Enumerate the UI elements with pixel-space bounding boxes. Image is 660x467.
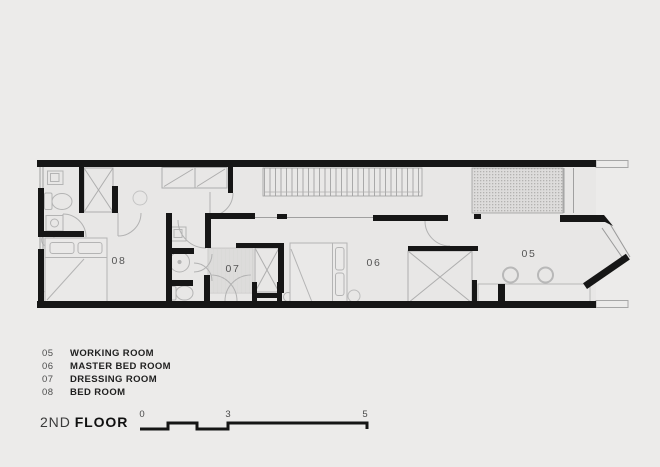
wall-segment [79, 167, 84, 213]
page: 05 06 07 08 0 3 5 05 WORKING ROOM 06 MAS… [0, 0, 660, 467]
bed-06 [290, 243, 347, 303]
room-label-08: 08 [112, 255, 127, 267]
wall-segment [37, 160, 596, 167]
wall-segment [166, 213, 172, 308]
room-label-06: 06 [367, 257, 382, 269]
wall-segment [228, 167, 233, 193]
wall-segment [37, 301, 596, 308]
wall-segment [373, 215, 448, 221]
wall-segment [168, 248, 194, 254]
wall-segment [472, 280, 477, 303]
wall-segment [38, 249, 44, 306]
wall-segment [474, 214, 481, 219]
legend-row: 08 BED ROOM [42, 386, 171, 399]
legend-name: BED ROOM [70, 387, 125, 398]
legend-code: 06 [42, 361, 70, 372]
bed-08 [45, 238, 107, 302]
wall-segment [205, 213, 211, 248]
wall-segment [498, 284, 505, 304]
room-label-07: 07 [226, 263, 241, 275]
wall-segment [277, 282, 282, 303]
wall-segment [168, 280, 193, 286]
wall-segment [408, 246, 478, 251]
scale-tick-3: 3 [225, 409, 230, 420]
legend-row: 05 WORKING ROOM [42, 347, 171, 360]
legend-row: 07 DRESSING ROOM [42, 373, 171, 386]
eave-line [596, 301, 628, 308]
desk [478, 284, 590, 302]
scale-tick-5: 5 [362, 409, 367, 420]
wall-segment [204, 275, 210, 303]
wall-segment [112, 186, 118, 213]
floor-title-prefix: 2ND [40, 414, 71, 430]
floor-title: 2NDFLOOR [40, 414, 128, 430]
legend-row: 06 MASTER BED ROOM [42, 360, 171, 373]
legend-name: MASTER BED ROOM [70, 361, 171, 372]
room-legend: 05 WORKING ROOM 06 MASTER BED ROOM 07 DR… [42, 347, 171, 399]
legend-name: WORKING ROOM [70, 348, 154, 359]
wall-segment [205, 213, 255, 219]
legend-code: 05 [42, 348, 70, 359]
legend-name: DRESSING ROOM [70, 374, 157, 385]
wall-segment [236, 243, 284, 248]
legend-code: 08 [42, 387, 70, 398]
legend-code: 07 [42, 374, 70, 385]
scale-bar-line [140, 423, 367, 429]
scale-bar: 0 3 5 [139, 409, 367, 429]
floor-title-word: FLOOR [75, 414, 129, 430]
room-label-05: 05 [522, 248, 537, 260]
eave-line [596, 161, 628, 168]
wall-segment [38, 188, 44, 236]
wall-segment [252, 282, 257, 303]
void-hatch [472, 168, 563, 213]
wall-segment [277, 214, 287, 219]
wall-segment [38, 231, 84, 237]
scale-tick-0: 0 [139, 409, 144, 420]
